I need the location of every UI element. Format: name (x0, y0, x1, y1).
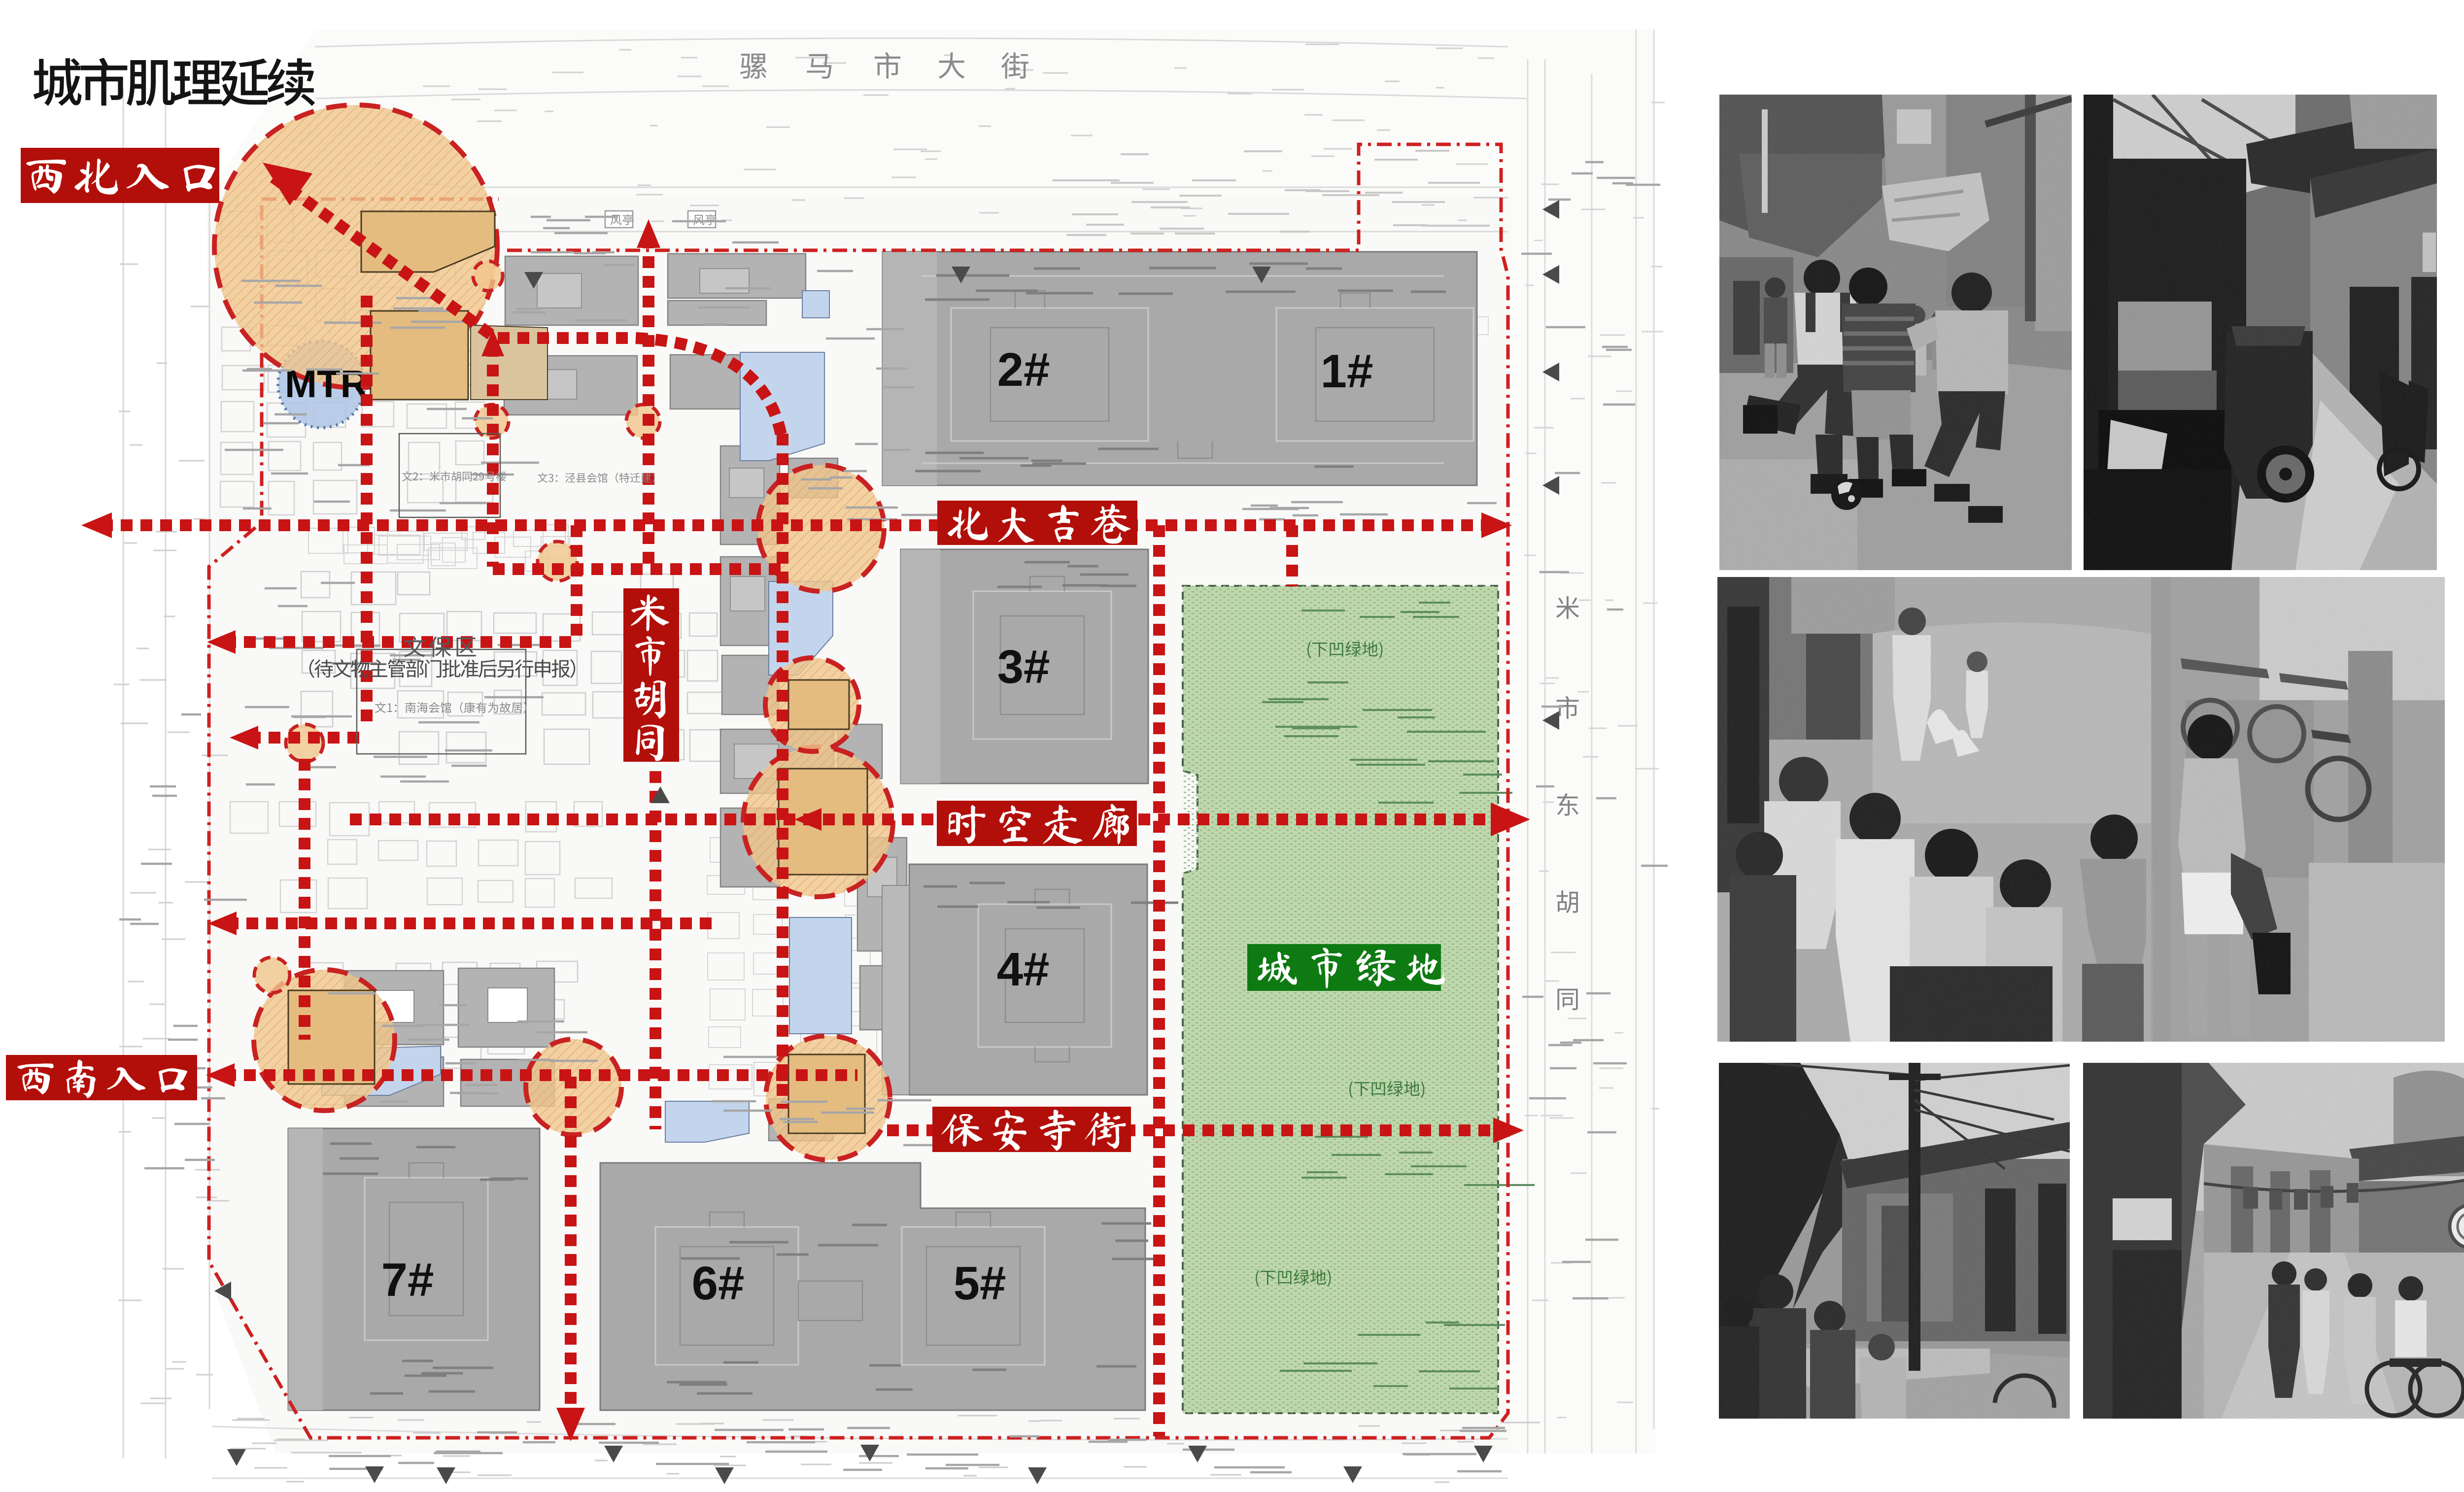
svg-text:7#: 7# (381, 1254, 434, 1306)
svg-text:6#: 6# (692, 1257, 745, 1310)
svg-text:2#: 2# (997, 343, 1050, 396)
svg-text:3#: 3# (997, 641, 1050, 693)
svg-text:1#: 1# (1321, 345, 1373, 398)
svg-text:4#: 4# (997, 943, 1050, 996)
svg-text:5#: 5# (954, 1257, 1006, 1310)
